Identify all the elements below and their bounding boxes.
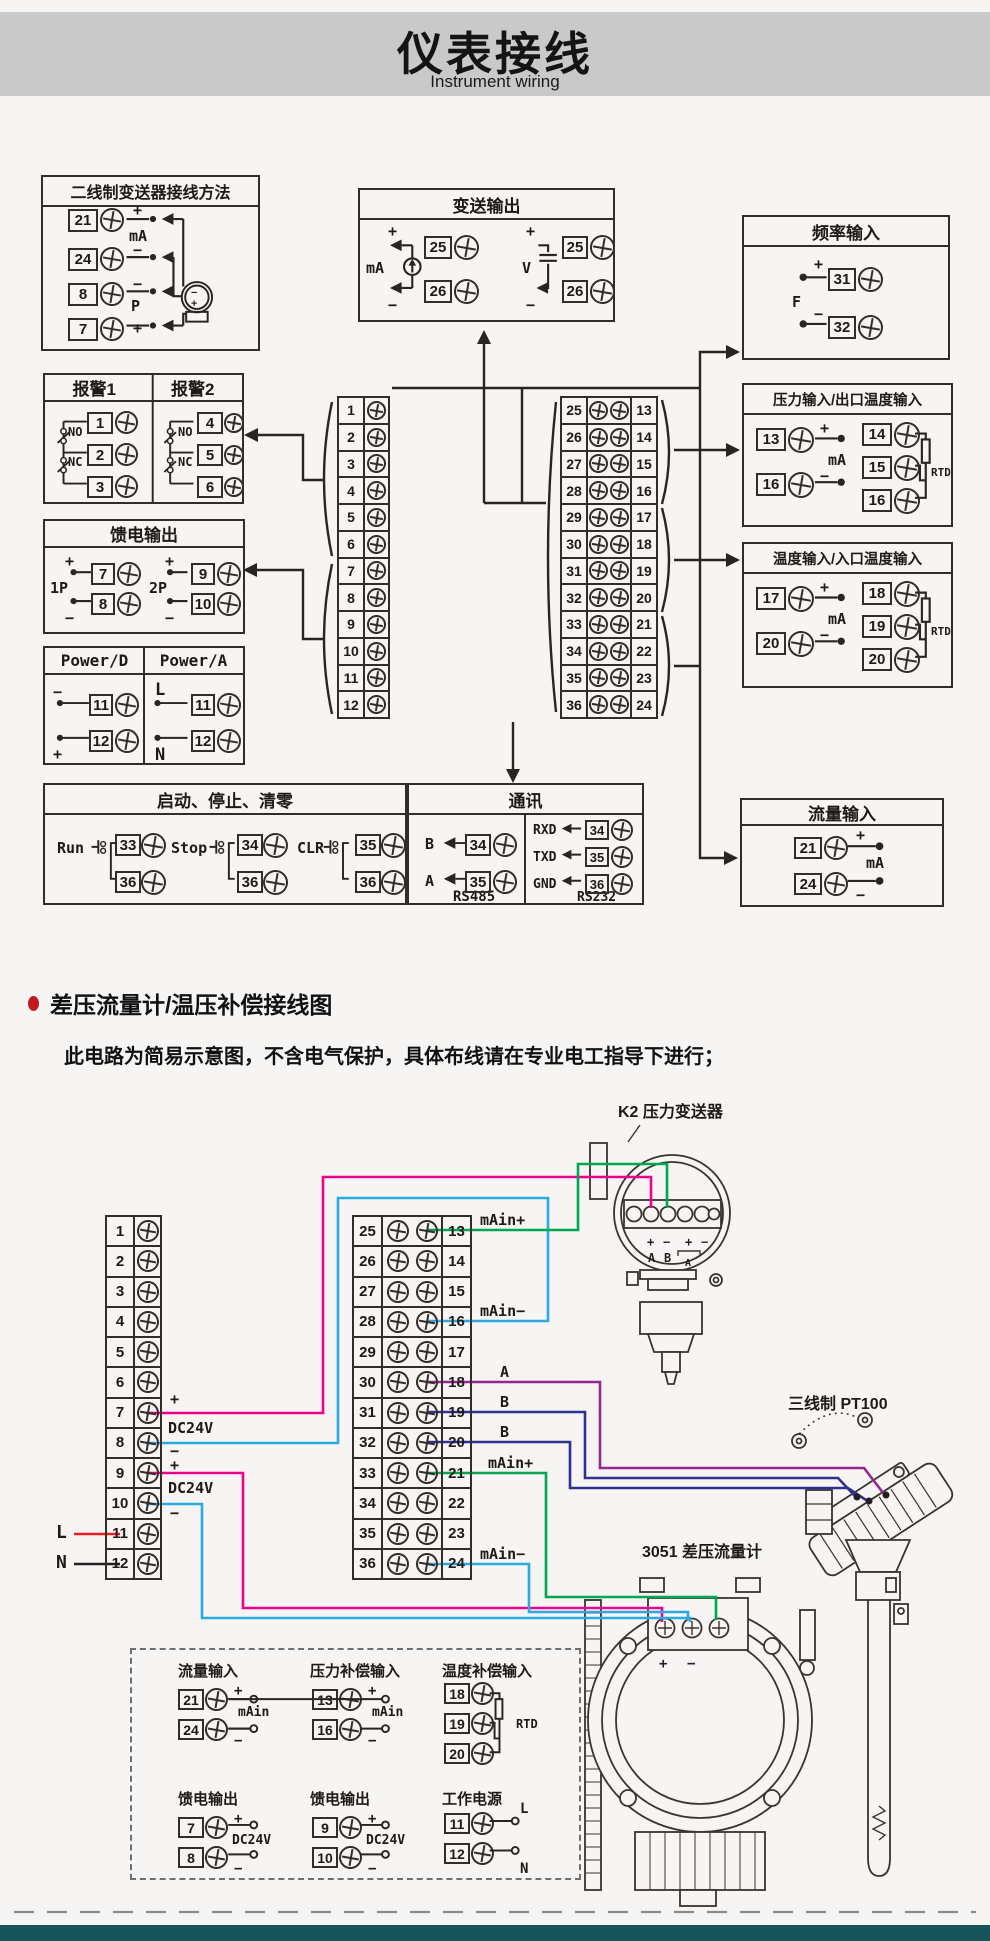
screw-terminal-icon — [786, 629, 816, 659]
box-run-stop-clear: 启动、停止、清零 Run Stop CLR 33 36 34 36 35 36 — [43, 783, 407, 905]
label-main-minus-24: mAin− — [480, 1547, 525, 1562]
terminal-row: 1 — [107, 1217, 160, 1245]
group-1p-label: 1P — [50, 581, 68, 596]
screw-terminal-icon — [98, 245, 126, 273]
group-title: 馈电输出 — [178, 1788, 238, 1809]
dc24v-label: DC24V — [168, 1481, 213, 1496]
screw-terminal-icon — [222, 443, 245, 466]
screw-terminal-icon — [587, 533, 609, 555]
screw-terminal-icon — [222, 411, 245, 434]
plus-sign: + — [368, 1812, 376, 1826]
terminal-number: 21 — [630, 612, 656, 637]
terminal-row: 8 — [107, 1427, 160, 1457]
terminal-row: 4 — [107, 1306, 160, 1336]
terminal-number: 36 — [354, 1550, 383, 1578]
screw-terminal-icon — [365, 533, 387, 555]
screw-terminal-icon — [365, 399, 387, 421]
screw-terminal-icon — [491, 868, 519, 896]
main-label: mAin — [238, 1706, 269, 1719]
wires — [74, 1164, 884, 1622]
minus-sign: − — [820, 628, 829, 643]
box-title: 启动、停止、清零 — [45, 785, 405, 815]
screw-terminal-icon — [786, 425, 816, 455]
screw-terminal-icon — [414, 1491, 439, 1516]
screw-terminal-icon — [337, 1844, 364, 1871]
label-main-plus-13: mAin+ — [480, 1213, 525, 1228]
plus-sign: + — [53, 747, 62, 762]
screw-terminal-icon — [608, 613, 630, 635]
terminal-number: 10 — [191, 593, 215, 615]
terminal-number: 1 — [87, 412, 113, 434]
terminal-number: 16 — [630, 478, 656, 503]
terminal-number: 19 — [444, 1713, 470, 1734]
terminal-number: 20 — [862, 648, 892, 671]
screw-terminal-icon — [469, 1710, 496, 1737]
screw-terminal-icon — [608, 640, 630, 662]
screw-terminal-icon — [414, 1249, 439, 1274]
terminal-number: 16 — [756, 473, 786, 496]
plus-sign: + — [814, 257, 823, 272]
nc-label: NC — [68, 456, 82, 468]
terminal-row: 2715 — [562, 450, 656, 477]
screw-terminal-icon — [337, 1716, 364, 1743]
screw-terminal-icon — [608, 480, 630, 502]
terminal-row: 2513 — [562, 398, 656, 423]
terminal-row: 2 — [339, 423, 388, 450]
terminal-row: 1 — [339, 398, 388, 423]
terminal-number: 26 — [562, 425, 588, 450]
terminal-number: 36 — [562, 692, 588, 717]
screw-terminal-icon — [113, 441, 140, 468]
terminal-number: 35 — [355, 834, 381, 856]
minus-sign: − — [388, 298, 397, 313]
terminal-number: 25 — [562, 236, 588, 259]
terminal-number: 28 — [562, 478, 588, 503]
box-frequency-input: 频率输入 + F − 31 32 — [742, 215, 950, 360]
terminal-number: 6 — [339, 532, 365, 557]
terminal-number: 26 — [424, 280, 452, 303]
svg-text:−: − — [701, 1235, 708, 1249]
label-main-minus-16: mAin− — [480, 1304, 525, 1319]
terminal-function-legend: 流量输入 21 24 + mAin − 压力补偿输入 13 16 + mAin … — [130, 1648, 581, 1880]
plus-sign: + — [165, 554, 174, 569]
terminal-number: 28 — [354, 1308, 383, 1336]
terminal-number: 13 — [756, 428, 786, 451]
terminal-number: 25 — [424, 236, 452, 259]
terminal-number: 21 — [441, 1459, 470, 1487]
terminal-number: 24 — [630, 692, 656, 717]
ma-label: mA — [828, 612, 846, 627]
screw-terminal-icon — [365, 453, 387, 475]
terminal-row: 2614 — [562, 423, 656, 450]
flowmeter-3051-label: 3051 差压流量计 — [642, 1538, 762, 1562]
terminal-row: 9 — [107, 1457, 160, 1487]
screw-terminal-icon — [452, 277, 481, 306]
screw-terminal-icon — [135, 1249, 160, 1274]
terminal-number: 34 — [585, 820, 609, 840]
terminal-number: 7 — [91, 563, 115, 585]
screw-terminal-icon — [135, 1370, 160, 1395]
terminal-row: 3119 — [354, 1397, 470, 1427]
neutral-n-label: N — [155, 747, 165, 764]
screw-terminal-icon — [587, 613, 609, 635]
terminal-row: 11 — [339, 664, 388, 691]
screw-terminal-icon — [608, 399, 630, 421]
svg-text:−: − — [663, 1235, 670, 1249]
terminal-number: 8 — [68, 283, 98, 306]
screw-terminal-icon — [337, 1814, 364, 1841]
clr-label: CLR — [297, 841, 324, 856]
terminal-number: 12 — [107, 1550, 135, 1578]
terminal-number: 11 — [339, 666, 365, 691]
screw-terminal-icon — [135, 1551, 160, 1576]
screw-terminal-icon — [587, 506, 609, 528]
neutral-n-label: N — [520, 1862, 528, 1876]
screw-terminal-icon — [113, 409, 140, 436]
terminal-number: 2 — [87, 444, 113, 466]
terminal-number: 11 — [444, 1813, 470, 1834]
terminal-number: 24 — [68, 248, 98, 271]
section-heading: 差压流量计/温压补偿接线图 — [50, 986, 332, 1020]
stop-label: Stop — [171, 841, 207, 856]
minus-sign: − — [814, 307, 823, 322]
terminal-row: 2614 — [354, 1245, 470, 1275]
terminal-row: 3 — [339, 450, 388, 477]
terminal-number: 35 — [465, 871, 491, 893]
screw-terminal-icon — [261, 868, 290, 897]
terminal-number: 8 — [91, 593, 115, 615]
svg-text:A: A — [685, 1258, 691, 1269]
svg-text:+: + — [685, 1235, 692, 1249]
screw-terminal-icon — [609, 817, 634, 842]
screw-terminal-icon — [414, 1309, 439, 1334]
screw-terminal-icon — [365, 560, 387, 582]
svg-text:+: + — [647, 1235, 654, 1249]
terminal-row: 3523 — [562, 664, 656, 691]
terminal-number: 4 — [107, 1308, 135, 1336]
screw-terminal-icon — [469, 1840, 496, 1867]
v-label: V — [522, 261, 531, 276]
terminal-number: 10 — [339, 639, 365, 664]
terminal-number: 34 — [354, 1489, 383, 1517]
screw-terminal-icon — [491, 831, 519, 859]
nc-label: NC — [178, 456, 192, 468]
terminal-row: 9 — [339, 610, 388, 637]
terminal-number: 12 — [89, 730, 113, 752]
terminal-row: 3018 — [562, 530, 656, 557]
terminal-row: 3220 — [562, 583, 656, 610]
terminal-number: 11 — [89, 694, 113, 716]
screw-terminal-icon — [469, 1810, 496, 1837]
terminal-number: 35 — [585, 847, 609, 867]
screw-terminal-icon — [261, 831, 290, 860]
screw-terminal-icon — [113, 473, 140, 500]
screw-terminal-icon — [414, 1339, 439, 1364]
terminal-number: 17 — [441, 1338, 470, 1366]
svg-text:−: − — [687, 1656, 695, 1672]
minus-sign: − — [856, 888, 865, 903]
line-l-label: L — [520, 1802, 528, 1816]
terminal-number: 20 — [630, 585, 656, 610]
terminal-number: 4 — [197, 412, 223, 434]
neutral-n-label: N — [56, 1554, 67, 1572]
minus-sign: − — [53, 685, 62, 700]
terminal-number: 12 — [191, 730, 215, 752]
plus-sign: + — [65, 554, 74, 569]
screw-terminal-icon — [892, 453, 922, 483]
box-flow-input: 流量输入 + mA − 21 24 — [740, 798, 944, 907]
legend-rtd-deco — [132, 1650, 579, 1878]
label-b-20: B — [500, 1425, 509, 1440]
ma-label: mA — [366, 261, 384, 276]
terminal-row: 4 — [339, 476, 388, 503]
alarm2-title: 报警2 — [144, 375, 243, 400]
minus-sign: − — [165, 611, 174, 626]
plus-sign: + — [133, 203, 142, 218]
screw-terminal-icon — [587, 426, 609, 448]
screw-terminal-icon — [608, 694, 630, 716]
terminal-number: 14 — [630, 425, 656, 450]
terminal-number: 21 — [178, 1689, 204, 1710]
screw-terminal-icon — [215, 691, 243, 719]
box-title-row: Power/DPower/A — [45, 648, 243, 675]
ma-label: mA — [828, 453, 846, 468]
box-transmit-output: 变送输出 + mA − + V − 25 26 25 26 — [358, 188, 615, 322]
box-title: 二线制变送器接线方法 — [43, 177, 258, 207]
page-subtitle: Instrument wiring — [0, 72, 990, 92]
screw-terminal-icon — [337, 1686, 364, 1713]
no-label: NO — [178, 426, 192, 438]
plus-sign: + — [388, 224, 397, 239]
screw-terminal-icon — [203, 1716, 230, 1743]
screw-terminal-icon — [379, 831, 408, 860]
minus-sign: − — [234, 1862, 242, 1876]
screw-terminal-icon — [385, 1430, 410, 1455]
screw-terminal-icon — [469, 1740, 496, 1767]
terminal-row: 3321 — [562, 610, 656, 637]
terminal-row: 3422 — [354, 1487, 470, 1517]
terminal-number: 5 — [197, 444, 223, 466]
terminal-number: 20 — [441, 1429, 470, 1457]
screw-terminal-icon — [215, 560, 243, 588]
screw-terminal-icon — [609, 844, 634, 869]
terminal-number: 7 — [178, 1817, 204, 1838]
screw-terminal-icon — [365, 640, 387, 662]
plus-sign: + — [820, 580, 829, 595]
connector-lines — [249, 338, 732, 858]
plus-sign: + — [856, 828, 865, 843]
screw-terminal-icon — [365, 506, 387, 528]
screw-terminal-icon — [139, 831, 168, 860]
terminal-number: 35 — [354, 1520, 383, 1548]
terminal-number: 24 — [441, 1550, 470, 1578]
svg-text:+: + — [659, 1656, 667, 1672]
terminal-number: 6 — [197, 476, 223, 498]
screw-terminal-icon — [588, 233, 617, 262]
terminal-number: 30 — [354, 1368, 383, 1396]
screw-terminal-icon — [452, 233, 481, 262]
terminal-number: 30 — [562, 532, 588, 557]
group-title: 工作电源 — [442, 1788, 502, 1809]
screw-terminal-icon — [587, 560, 609, 582]
terminal-number: 32 — [354, 1429, 383, 1457]
screw-terminal-icon — [203, 1844, 230, 1871]
terminal-row: 5 — [339, 503, 388, 530]
terminal-number: 17 — [630, 505, 656, 530]
screw-terminal-icon — [385, 1460, 410, 1485]
terminal-number: 32 — [562, 585, 588, 610]
terminal-row: 2917 — [562, 503, 656, 530]
terminal-row: 3624 — [354, 1548, 470, 1578]
screw-terminal-icon — [98, 315, 126, 343]
screw-terminal-icon — [113, 727, 141, 755]
terminal-row: 8 — [339, 583, 388, 610]
group-title: 馈电输出 — [310, 1788, 370, 1809]
section-note: 此电路为简易示意图，不含电气保护，具体布线请在专业电工指导下进行； — [64, 1040, 724, 1069]
screw-terminal-icon — [385, 1551, 410, 1576]
terminal-number: 18 — [441, 1368, 470, 1396]
rtd-label: RTD — [931, 467, 951, 478]
main-label: mAin — [372, 1706, 403, 1719]
rtd-label: RTD — [516, 1718, 538, 1730]
screw-terminal-icon — [385, 1309, 410, 1334]
screw-terminal-icon — [203, 1686, 230, 1713]
screw-terminal-icon — [365, 426, 387, 448]
terminal-number: 22 — [441, 1489, 470, 1517]
plus-sign: + — [234, 1684, 242, 1698]
screw-terminal-icon — [786, 470, 816, 500]
group-title: 温度补偿输入 — [442, 1660, 532, 1681]
terminal-row: 2715 — [354, 1276, 470, 1306]
terminal-number: 34 — [465, 834, 491, 856]
terminal-number: 9 — [312, 1817, 338, 1838]
terminal-number: 36 — [115, 871, 141, 893]
terminal-row: 3 — [107, 1276, 160, 1306]
p-label: P — [131, 299, 140, 314]
screw-terminal-icon — [215, 590, 243, 618]
terminal-number: 6 — [107, 1368, 135, 1396]
terminal-row: 10 — [339, 637, 388, 664]
terminal-number: 8 — [178, 1847, 204, 1868]
box-communication: 通讯 B A RXD TXD GND RS485 RS232 34 35 34 … — [407, 783, 644, 905]
terminal-number: 26 — [562, 280, 588, 303]
terminal-number: 13 — [441, 1217, 470, 1245]
screw-terminal-icon — [608, 453, 630, 475]
rs485-a-label: A — [425, 874, 434, 889]
box-title-row: 报警1报警2 — [45, 375, 242, 402]
pt100-label: 三线制 PT100 — [788, 1390, 888, 1414]
terminal-number: 16 — [862, 489, 892, 512]
minus-sign: − — [65, 611, 74, 626]
screw-terminal-icon — [385, 1370, 410, 1395]
screw-terminal-icon — [385, 1218, 410, 1243]
run-label: Run — [57, 841, 84, 856]
terminal-row: 2816 — [562, 476, 656, 503]
terminal-number: 25 — [354, 1217, 383, 1245]
terminal-strip-1-12: 123456789101112 — [337, 396, 390, 719]
minus-sign: − — [820, 469, 829, 484]
terminal-number: 15 — [630, 452, 656, 477]
terminal-number: 18 — [444, 1683, 470, 1704]
screw-terminal-icon — [115, 560, 143, 588]
terminal-number: 33 — [115, 834, 141, 856]
terminal-number: 27 — [354, 1278, 383, 1306]
terminal-number: 3 — [339, 452, 365, 477]
terminal-number: 3 — [87, 476, 113, 498]
screw-terminal-icon — [113, 691, 141, 719]
terminal-number: 21 — [794, 837, 822, 859]
terminal-row: 2917 — [354, 1336, 470, 1366]
minus-sign: − — [368, 1734, 376, 1748]
terminal-number: 13 — [312, 1689, 338, 1710]
terminal-row: 7 — [339, 557, 388, 584]
box-title: 变送输出 — [360, 190, 613, 220]
terminal-number: 8 — [107, 1429, 135, 1457]
terminal-number: 9 — [339, 612, 365, 637]
screw-terminal-icon — [135, 1279, 160, 1304]
ma-label: mA — [866, 856, 884, 871]
screw-terminal-icon — [135, 1521, 160, 1546]
screw-terminal-icon — [414, 1460, 439, 1485]
f-label: F — [792, 295, 801, 310]
screw-terminal-icon — [385, 1279, 410, 1304]
terminal-number: 29 — [562, 505, 588, 530]
terminal-number: 26 — [354, 1247, 383, 1275]
minus-sign: − — [170, 1506, 179, 1521]
terminal-row: 3119 — [562, 557, 656, 584]
svg-text:−: − — [191, 287, 197, 299]
terminal-number: 4 — [339, 478, 365, 503]
box-temperature-input: 温度输入/入口温度输入 + mA − RTD 17 20 18 19 20 — [742, 542, 953, 688]
terminal-row: 6 — [107, 1366, 160, 1396]
terminal-number: 11 — [191, 694, 215, 716]
terminal-row: 3523 — [354, 1518, 470, 1548]
terminal-number: 14 — [862, 423, 892, 446]
terminal-strip-25-36-13-24: 2513261427152816291730183119322033213422… — [560, 396, 658, 719]
screw-terminal-icon — [856, 313, 885, 342]
terminal-row: 2816 — [354, 1306, 470, 1336]
terminal-number: 9 — [107, 1459, 135, 1487]
box-title: 通讯 — [409, 785, 642, 815]
terminal-number: 33 — [354, 1459, 383, 1487]
screw-terminal-icon — [822, 870, 850, 898]
terminal-number: 13 — [630, 398, 656, 423]
label-b-19: B — [500, 1395, 509, 1410]
no-label: NO — [68, 426, 82, 438]
terminal-number: 19 — [441, 1399, 470, 1427]
plus-sign: + — [170, 1392, 179, 1407]
rs485-b-label: B — [425, 837, 434, 852]
plus-sign: + — [368, 1684, 376, 1698]
power-a-title: Power/A — [144, 651, 243, 670]
label-a-18: A — [500, 1365, 509, 1380]
terminal-number: 23 — [441, 1520, 470, 1548]
svg-text:+: + — [191, 298, 197, 310]
screw-terminal-icon — [135, 1309, 160, 1334]
page: + − + − A B A — [0, 0, 990, 1941]
screw-terminal-icon — [414, 1400, 439, 1425]
terminal-row: 3220 — [354, 1427, 470, 1457]
screw-terminal-icon — [135, 1491, 160, 1516]
terminal-number: 36 — [585, 874, 609, 894]
screw-terminal-icon — [892, 645, 922, 675]
terminal-number: 16 — [441, 1308, 470, 1336]
wiring-strip-1-12: 123456789101112 — [105, 1215, 162, 1580]
screw-terminal-icon — [385, 1400, 410, 1425]
terminal-row: 2 — [107, 1245, 160, 1275]
screw-terminal-icon — [608, 506, 630, 528]
screw-terminal-icon — [135, 1339, 160, 1364]
